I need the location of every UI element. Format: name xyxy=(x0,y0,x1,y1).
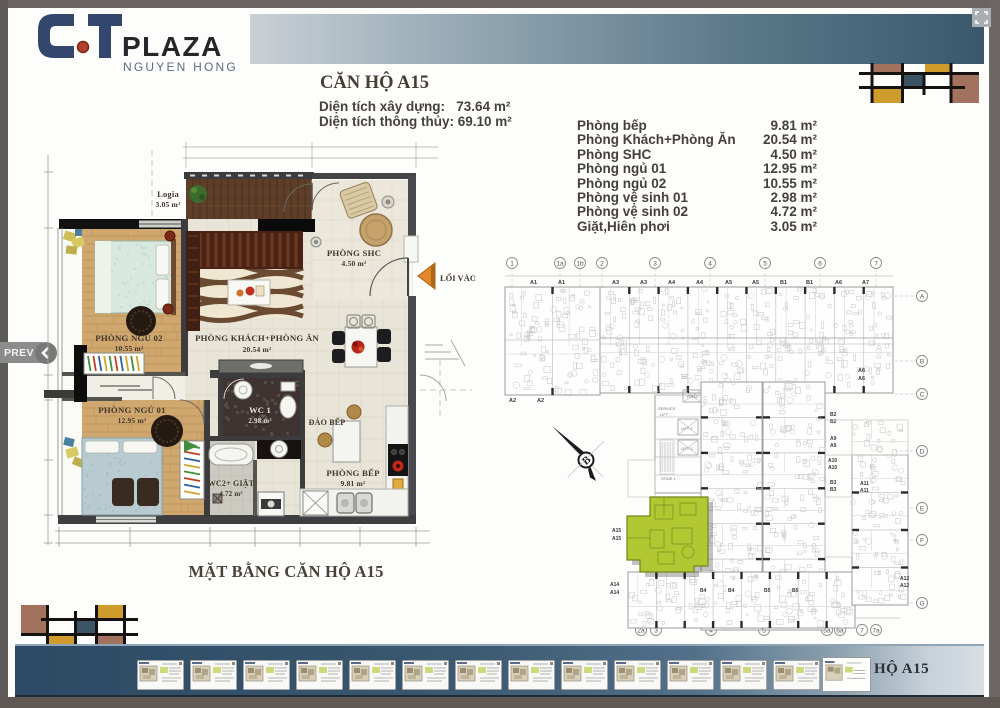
svg-text:ĐẢO BẾP: ĐẢO BẾP xyxy=(309,417,346,427)
svg-text:A14: A14 xyxy=(610,582,619,588)
svg-text:B3: B3 xyxy=(830,480,837,486)
svg-text:NGUYEN HONG: NGUYEN HONG xyxy=(123,60,238,74)
svg-text:4: 4 xyxy=(708,261,712,268)
svg-text:C: C xyxy=(920,392,925,399)
svg-text:A3: A3 xyxy=(612,280,619,286)
svg-text:PLAZA: PLAZA xyxy=(122,31,223,62)
svg-text:B4: B4 xyxy=(728,588,735,594)
svg-text:3: 3 xyxy=(653,261,657,268)
svg-text:A4: A4 xyxy=(696,280,704,286)
svg-text:LIFT 1: LIFT 1 xyxy=(681,446,693,451)
svg-text:6a: 6a xyxy=(836,628,844,635)
svg-text:P.RAC: P.RAC xyxy=(687,394,699,399)
svg-text:A9: A9 xyxy=(830,436,837,442)
svg-text:SERVICE: SERVICE xyxy=(658,406,676,411)
svg-text:2a: 2a xyxy=(637,628,645,635)
svg-text:WC 1: WC 1 xyxy=(249,405,271,415)
svg-text:1a: 1a xyxy=(556,261,564,268)
svg-text:A1: A1 xyxy=(530,280,537,286)
svg-text:A7: A7 xyxy=(862,280,869,286)
svg-text:A15: A15 xyxy=(612,528,621,534)
svg-text:WC2+ GIẶT: WC2+ GIẶT xyxy=(208,479,255,488)
svg-text:A12: A12 xyxy=(900,583,909,589)
svg-text:A: A xyxy=(920,294,925,301)
svg-text:PHÒNG BẾP: PHÒNG BẾP xyxy=(326,468,380,478)
svg-text:12.95 m²: 12.95 m² xyxy=(118,416,147,425)
svg-text:A1: A1 xyxy=(558,280,565,286)
svg-text:6: 6 xyxy=(818,261,822,268)
svg-text:A11: A11 xyxy=(860,488,869,494)
svg-text:A3: A3 xyxy=(640,280,647,286)
svg-text:A5: A5 xyxy=(752,280,759,286)
svg-text:1: 1 xyxy=(510,261,514,268)
svg-text:B5: B5 xyxy=(792,588,799,594)
svg-text:B4: B4 xyxy=(700,588,707,594)
svg-text:20.54 m²: 20.54 m² xyxy=(243,345,272,354)
svg-text:LIFT: LIFT xyxy=(660,412,669,417)
svg-text:B2: B2 xyxy=(830,412,837,418)
svg-text:B: B xyxy=(920,359,924,366)
svg-text:4.50 m²: 4.50 m² xyxy=(342,259,367,268)
svg-text:4.72 m²: 4.72 m² xyxy=(219,490,242,498)
svg-text:D: D xyxy=(920,449,925,456)
svg-text:B1: B1 xyxy=(806,280,813,286)
svg-text:G: G xyxy=(919,601,924,608)
svg-text:PHÒNG NGỦ 02: PHÒNG NGỦ 02 xyxy=(95,333,163,343)
svg-text:A10: A10 xyxy=(828,465,837,471)
svg-text:A5: A5 xyxy=(725,280,732,286)
svg-text:A6: A6 xyxy=(858,368,865,374)
svg-text:A12: A12 xyxy=(900,576,909,582)
svg-text:10.55 m²: 10.55 m² xyxy=(115,344,144,353)
svg-text:2: 2 xyxy=(600,261,604,268)
svg-text:STAIR 1: STAIR 1 xyxy=(661,476,677,481)
svg-text:A9: A9 xyxy=(830,443,837,449)
svg-text:A2: A2 xyxy=(509,398,516,404)
svg-text:PHÒNG SHC: PHÒNG SHC xyxy=(327,248,381,258)
svg-text:3: 3 xyxy=(654,628,658,635)
svg-text:A6: A6 xyxy=(835,280,842,286)
svg-text:1b: 1b xyxy=(576,261,584,268)
svg-text:A2: A2 xyxy=(537,398,544,404)
svg-text:F: F xyxy=(920,538,924,545)
svg-text:B1: B1 xyxy=(780,280,787,286)
svg-text:B3: B3 xyxy=(830,487,837,493)
svg-text:LIFT 2: LIFT 2 xyxy=(681,426,693,431)
svg-text:PHÒNG NGỦ 01: PHÒNG NGỦ 01 xyxy=(98,405,165,415)
svg-text:E: E xyxy=(920,506,925,513)
svg-text:7: 7 xyxy=(874,261,878,268)
svg-text:PHÒNG KHÁCH+PHÒNG ĂN: PHÒNG KHÁCH+PHÒNG ĂN xyxy=(195,333,319,343)
svg-text:B5: B5 xyxy=(764,588,771,594)
svg-text:A14: A14 xyxy=(610,590,619,596)
svg-text:A11: A11 xyxy=(860,481,869,487)
svg-text:Logia: Logia xyxy=(157,189,179,199)
svg-text:2.98 m²: 2.98 m² xyxy=(248,417,271,425)
svg-text:A15: A15 xyxy=(612,536,621,542)
svg-text:7a: 7a xyxy=(872,628,880,635)
svg-text:LỐI VÀO: LỐI VÀO xyxy=(440,273,475,283)
svg-text:5: 5 xyxy=(763,261,767,268)
svg-text:3.05 m²: 3.05 m² xyxy=(156,200,181,209)
svg-text:A10: A10 xyxy=(828,458,837,464)
svg-text:7: 7 xyxy=(860,628,864,635)
svg-text:A6: A6 xyxy=(858,376,865,382)
svg-text:A4: A4 xyxy=(668,280,676,286)
svg-text:9.81 m²: 9.81 m² xyxy=(341,479,366,488)
